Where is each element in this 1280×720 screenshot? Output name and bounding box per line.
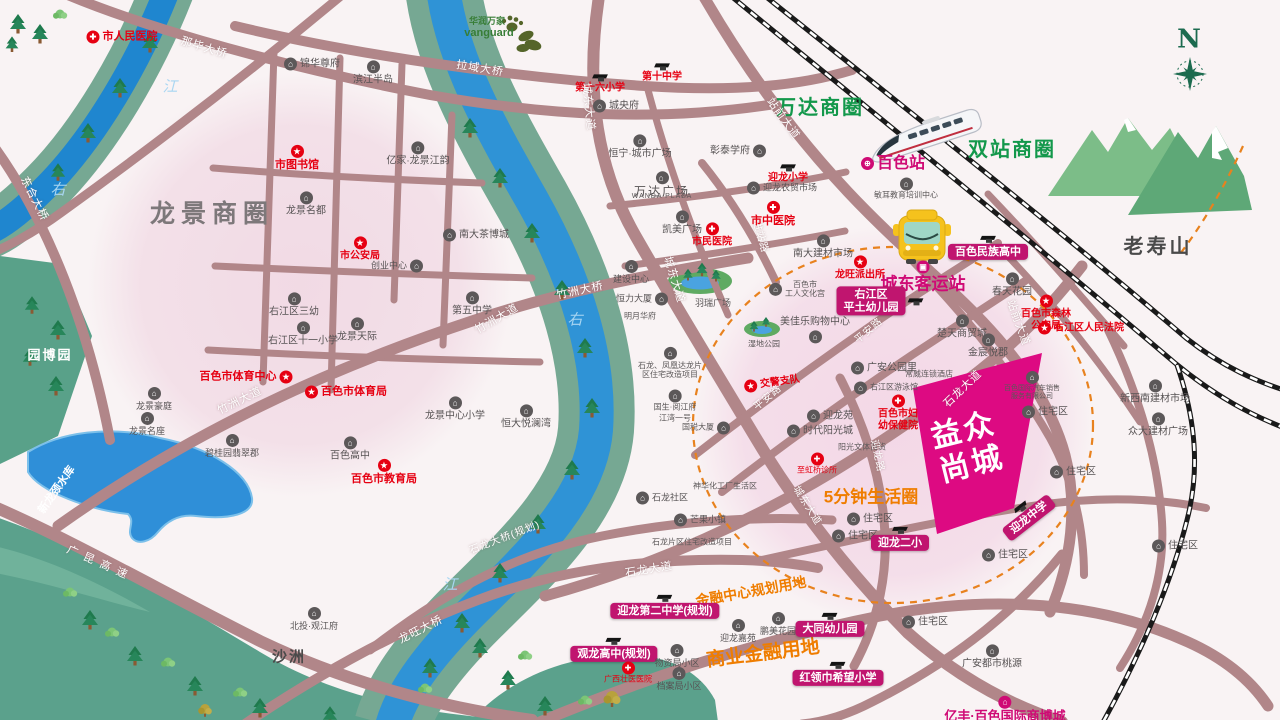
jianshe-center: ⌂建设中心 — [613, 260, 649, 284]
house-icon: ⌂ — [655, 171, 668, 184]
longjing-mingdu-text: 龙景名都 — [286, 205, 326, 216]
longjing-haoting: ⌂龙景豪庭 — [136, 387, 172, 411]
zhuzhou-avenue-label-1: 竹洲大道 — [216, 385, 265, 417]
house-icon: ⌂ — [412, 141, 425, 154]
yinglong-jiayuan-text: 迎龙嘉苑 — [720, 633, 756, 643]
hengda-yuelanwan: ⌂恒大悦澜湾 — [501, 404, 551, 429]
binjiang-peninsula-text: 滨江半岛 — [353, 74, 393, 85]
guosheng-yuejiangfu-text: 国生·阅江府 — [654, 404, 697, 413]
layu-bridge-road-label: 拉域大桥 — [455, 59, 504, 79]
yinglong-2nd-primary: 迎龙二小 — [871, 525, 929, 551]
pingan-road-label-2: 平安路 — [853, 316, 885, 346]
guangxi-zhuang-hospital: ✚广西壮医医院 — [604, 662, 652, 685]
wetland-park: 湿地公园 — [748, 341, 780, 350]
longjing-center-primary: ⌂龙景中心小学 — [425, 396, 485, 421]
house-icon: ⌂ — [300, 191, 313, 204]
house-icon: ⌂ — [624, 260, 637, 273]
station-icon: ⊕ — [861, 158, 874, 171]
hengli-tower-text: 恒力大厦 — [616, 294, 652, 304]
zhongda-building-plaza-text: 众大建材广场 — [1128, 426, 1188, 437]
house-icon: ⌂ — [410, 260, 423, 273]
star-icon: ★ — [291, 145, 304, 158]
vanguard-logo-en-text: vanguard — [464, 27, 514, 39]
wuziju-block: ⌂物资局小区 — [654, 644, 699, 668]
youjiang-3rd-kindergarten-text: 右江区三幼 — [269, 306, 319, 317]
no10-middle-school-text: 第十中学 — [642, 71, 682, 82]
chengdong-avenue-label-3-text: 城东大道 — [791, 484, 824, 527]
five-minute-life-circle: 5分钟生活圈 — [824, 487, 918, 506]
house-icon: ⌂ — [769, 283, 782, 296]
house-icon: ⌂ — [982, 333, 995, 346]
chengyangfu-text: 城央府 — [609, 100, 639, 111]
sports-bureau: ★百色市体育局 — [305, 386, 387, 399]
no5-middle-school: ⌂第五中学 — [452, 291, 492, 316]
yuanbo-park-label: 园博园 — [27, 349, 72, 364]
guangkun-expressway-label: 广昆高速 — [65, 544, 136, 585]
project-name-text: 益众尚城 — [928, 407, 1009, 490]
danganju-block: ⌂档案局小区 — [656, 667, 701, 691]
yinglong-farmers-market-text: 迎龙农贸市场 — [763, 183, 817, 193]
hengning-city-plaza: ⌂恒宁·城市广场 — [608, 134, 671, 159]
river1-char-you-text: 右 — [50, 182, 65, 199]
yinglong-farmers-market: ⌂迎龙农贸市场 — [747, 182, 817, 195]
house-icon: ⌂ — [284, 58, 297, 71]
hengning-city-plaza-text: 恒宁·城市广场 — [608, 148, 671, 159]
house-icon: ⌂ — [809, 331, 822, 344]
city-library: ★市图书馆 — [275, 145, 319, 171]
graduation-cap-icon — [593, 72, 608, 81]
house-icon: ⌂ — [1149, 379, 1162, 392]
guanlong-high-planned-text: 观龙高中(规划) — [570, 646, 657, 662]
estate-location-map: ✚市人民医院那毕大桥⌂锦华尊府⌂滨江半岛拉域大桥华润万家vanguard第十六小… — [0, 0, 1280, 720]
city-peoples-hospital: ✚市人民医院 — [87, 31, 158, 44]
city-tcm-hospital-text: 市中医院 — [751, 215, 795, 227]
house-icon: ⌂ — [593, 100, 606, 113]
longjing-mingzuo-text: 龙景名座 — [129, 426, 165, 436]
cross-icon: ✚ — [892, 395, 905, 408]
nabi-bridge-road-label-text: 那毕大桥 — [179, 35, 229, 61]
house-icon: ⌂ — [1006, 272, 1019, 285]
yinglong-middle-school-text: 迎龙中学 — [1001, 494, 1057, 543]
city-library-text: 市图书馆 — [275, 159, 319, 171]
pingtu-kindergarten: 右江区平土幼儿园 — [837, 286, 924, 315]
star-icon: ★ — [1038, 322, 1051, 335]
xinxinan-building-market: ⌂新西南建材市场 — [1120, 379, 1190, 404]
star-icon: ★ — [280, 371, 293, 384]
house-icon: ⌂ — [817, 234, 830, 247]
house-icon: ⌂ — [854, 382, 867, 395]
house-icon: ⌂ — [847, 513, 860, 526]
binjiang-peninsula: ⌂滨江半岛 — [353, 60, 393, 85]
auto-sales-company: ⌂百色国际汽车销售服务有限公司 — [1004, 371, 1060, 401]
youjiang-swimming-pool-text: 右江区游泳馆 — [870, 384, 918, 393]
longjing-haoting-text: 龙景豪庭 — [136, 401, 172, 411]
yinglong-2nd-primary-text: 迎龙二小 — [871, 535, 929, 551]
river1-char-you: 右 — [50, 182, 65, 199]
river1-char-jiang: 江 — [162, 79, 177, 96]
shenhua-plant-living-area-text: 神华化工厂生活区 — [693, 483, 757, 492]
biguiyuan-feicuijun: ⌂碧桂园翡翠郡 — [205, 434, 259, 458]
yifeng-expo-city-text: 亿丰·百色国际商博城 — [944, 710, 1065, 720]
house-icon: ⌂ — [297, 321, 310, 334]
guangan-metro-taoyuan-text: 广安都市桃源 — [962, 658, 1022, 669]
yijia-longjiang: ⌂亿家·龙景江韵 — [386, 141, 449, 166]
city-tcm-hospital: ✚市中医院 — [751, 201, 795, 227]
yijia-longjiang-text: 亿家·龙景江韵 — [386, 155, 449, 166]
baise-high-school: ⌂百色高中 — [330, 436, 370, 461]
yurui-plaza: 羽瑞广场 — [695, 298, 731, 308]
graduation-cap-icon — [831, 660, 846, 669]
compass-n-label-text: N — [1177, 25, 1201, 54]
youjiang-swimming-pool: ⌂右江区游泳馆 — [854, 382, 918, 395]
house-icon: ⌂ — [668, 390, 681, 403]
cross-icon: ✚ — [87, 31, 100, 44]
busstop-icon: ▣ — [917, 260, 930, 273]
xinlongjing-reservoir-label: 新龙颈水库 — [36, 464, 78, 516]
auto-sales-company-text: 百色国际汽车销售服务有限公司 — [1004, 385, 1060, 401]
yifeng-expo-city: ⌂亿丰·百色国际商博城 — [944, 696, 1065, 720]
graduation-cap-icon — [909, 297, 924, 306]
residential-area-2-text: 住宅区 — [1066, 466, 1096, 477]
mall-icon: ⌂ — [999, 696, 1012, 709]
no5-middle-school-text: 第五中学 — [452, 305, 492, 316]
jinhua-mansion-text: 锦华尊府 — [300, 58, 340, 69]
wanda-business-circle-text: 万达商圈 — [776, 97, 864, 119]
times-sunshine-city-text: 时代阳光城 — [803, 425, 853, 436]
yinglong-middle-school: 迎龙中学 — [995, 486, 1057, 542]
house-icon: ⌂ — [832, 530, 845, 543]
shilong-housing-project-text: 石龙片区住宅改造项目 — [652, 539, 732, 548]
longwang-bridge-label-text: 龙旺大桥 — [397, 614, 445, 647]
star-icon: ★ — [378, 459, 391, 472]
pengmei-garden: ⌂鹏美花园 — [760, 612, 796, 636]
residential-area-7: ⌂住宅区 — [902, 616, 948, 629]
house-icon: ⌂ — [225, 434, 238, 447]
guangkun-expressway-label-text: 广昆高速 — [65, 544, 136, 585]
beitou-guanjiangfu-text: 北投·观江府 — [290, 621, 338, 631]
yuanbo-park-label-text: 园博园 — [27, 349, 72, 364]
zhuzhou-bridge-label: 竹洲大桥 — [555, 280, 605, 302]
graduation-cap-icon — [893, 525, 908, 534]
wanda-plaza-en-text: WANDA PLAZA — [632, 193, 693, 201]
graduation-cap-icon — [823, 611, 838, 620]
guangxi-zhuang-hospital-text: 广西壮医医院 — [604, 676, 652, 685]
chuangye-center-text: 创业中心 — [371, 261, 407, 271]
house-icon: ⌂ — [747, 182, 760, 195]
donghe-bridge-road-label: 东合大桥 — [18, 175, 51, 223]
house-icon: ⌂ — [351, 317, 364, 330]
house-icon: ⌂ — [672, 667, 685, 680]
biguiyuan-feicuijun-text: 碧桂园翡翠郡 — [205, 448, 259, 458]
xinxinan-building-market-text: 新西南建材市场 — [1120, 393, 1190, 404]
house-icon: ⌂ — [717, 422, 730, 435]
cross-icon: ✚ — [767, 201, 780, 214]
house-icon: ⌂ — [956, 314, 969, 327]
house-icon: ⌂ — [986, 644, 999, 657]
longjing-business-circle-text: 龙景商圈 — [150, 200, 274, 228]
miner-education-center: ⌂敏耳教育培训中心 — [874, 178, 938, 201]
house-icon: ⌂ — [670, 644, 683, 657]
baise-minzu-high-school-text: 百色民族高中 — [948, 244, 1028, 260]
star-icon: ★ — [743, 379, 758, 394]
mch-hospital-text: 百色市妇幼保健院 — [878, 409, 918, 432]
baise-railway-station-text: 百色站 — [877, 155, 925, 173]
xinlongjing-reservoir-label-text: 新龙颈水库 — [36, 464, 78, 516]
house-icon: ⌂ — [147, 387, 160, 400]
sports-center: ★百色市体育中心 — [200, 371, 293, 384]
shilong-avenue-label-1: 石龙大道 — [624, 560, 673, 580]
mango-town: ⌂芒果小镇 — [674, 514, 726, 527]
house-icon: ⌂ — [1152, 540, 1165, 553]
laoshou-mountain-text: 老寿山 — [1124, 236, 1193, 258]
longjing-mingzuo: ⌂龙景名座 — [129, 412, 165, 436]
hengda-yuelanwan-text: 恒大悦澜湾 — [501, 418, 551, 429]
workers-culture-palace: ⌂百色市工人文化宫 — [769, 280, 825, 298]
guosheng-yuejiangfu: ⌂国生·阅江府 — [654, 390, 697, 413]
times-sunshine-city: ⌂时代阳光城 — [787, 425, 853, 438]
residential-area-3-text: 住宅区 — [863, 513, 893, 524]
star-icon: ★ — [305, 386, 318, 399]
five-minute-life-circle-text: 5分钟生活圈 — [824, 487, 918, 506]
house-icon: ⌂ — [676, 210, 689, 223]
zhangtai-xuefu: ⌂彰泰学府 — [710, 145, 766, 158]
miner-education-center-text: 敏耳教育培训中心 — [874, 192, 938, 201]
city-psb-text: 市公安局 — [340, 250, 380, 261]
donghe-bridge-road-label-text: 东合大桥 — [18, 175, 51, 223]
shilong-community-text: 石龙社区 — [652, 493, 688, 503]
shazhou-label: 沙洲 — [272, 650, 306, 667]
yinglong-2nd-middle-planned: 迎龙第二中学(规划) — [610, 593, 719, 619]
jinchen-yuejun-text: 金宸悦郡 — [968, 347, 1008, 358]
shilong-bridge-planned-label: 石龙大桥(规划) — [468, 519, 542, 556]
mingyue-mansion-text: 明月华府 — [624, 313, 656, 322]
star-icon: ★ — [854, 255, 867, 268]
city-psb: ★市公安局 — [340, 236, 380, 261]
house-icon: ⌂ — [851, 362, 864, 375]
residential-area-5-text: 住宅区 — [998, 549, 1028, 560]
chengyangfu: ⌂城央府 — [593, 100, 639, 113]
residential-area-1: ⌂住宅区 — [1022, 406, 1068, 419]
guangan-metro-taoyuan: ⌂广安都市桃源 — [962, 644, 1022, 669]
house-icon: ⌂ — [771, 612, 784, 625]
house-icon: ⌂ — [753, 145, 766, 158]
mingyue-mansion: 明月华府 — [624, 313, 656, 322]
yinglong-yuan: ⌂迎龙苑 — [807, 410, 853, 423]
baise-railway-station: ⊕百色站 — [861, 155, 925, 173]
vanguard-logo-cn: 华润万家 — [469, 16, 505, 26]
red-scarf-hope-primary-text: 红领巾希望小学 — [793, 670, 884, 686]
education-bureau-text: 百色市教育局 — [351, 473, 417, 485]
changwei-hotel-text: 常威连锁酒店 — [905, 371, 953, 380]
star-icon: ★ — [354, 236, 367, 249]
house-icon: ⌂ — [1050, 466, 1063, 479]
river1-char-jiang-text: 江 — [162, 79, 177, 96]
house-icon: ⌂ — [520, 404, 533, 417]
hengli-tower: ⌂恒力大厦 — [616, 293, 668, 306]
house-icon: ⌂ — [664, 347, 677, 360]
house-icon: ⌂ — [140, 412, 153, 425]
yinglong-jiayuan: ⌂迎龙嘉苑 — [720, 619, 756, 643]
house-icon: ⌂ — [1026, 371, 1039, 384]
house-icon: ⌂ — [902, 616, 915, 629]
guanlong-high-planned: 观龙高中(规划) — [570, 636, 657, 662]
jianshe-center-text: 建设中心 — [613, 274, 649, 284]
graduation-cap-icon — [981, 234, 996, 243]
youjiang-11th-primary-text: 右江区十一小学 — [268, 335, 338, 346]
cross-icon: ✚ — [811, 453, 824, 466]
chengdong-avenue-label-3: 城东大道 — [791, 484, 824, 527]
youjiang-3rd-kindergarten: ⌂右江区三幼 — [269, 292, 319, 317]
sports-bureau-text: 百色市体育局 — [321, 386, 387, 398]
river2-char-jiang: 江 — [442, 577, 457, 594]
house-icon: ⌂ — [900, 178, 913, 191]
kaimei-plaza-text: 凯美广场 — [662, 224, 702, 235]
river2-char-you-text: 右 — [567, 312, 582, 329]
house-icon: ⌂ — [787, 425, 800, 438]
meijiale-shopping-center: ⌂美佳乐购物中心 — [780, 316, 850, 343]
graduation-cap-icon — [655, 61, 670, 70]
longjing-tianji-text: 龙景天际 — [337, 331, 377, 342]
house-icon: ⌂ — [655, 293, 668, 306]
jinchen-yuejun: ⌂金宸悦郡 — [968, 333, 1008, 358]
workers-culture-palace-text: 百色市工人文化宫 — [785, 280, 825, 298]
shazhou-label-text: 沙洲 — [272, 650, 306, 667]
zhongda-building-plaza: ⌂众大建材广场 — [1128, 412, 1188, 437]
star-icon: ★ — [1040, 295, 1053, 308]
shuangzhan-business-circle: 双站商圈 — [968, 139, 1056, 161]
pingan-road-label-2-text: 平安路 — [853, 316, 885, 346]
shilong-avenue-label-1-text: 石龙大道 — [624, 560, 673, 580]
datong-kindergarten-text: 大同幼儿园 — [796, 621, 865, 637]
longjing-mingdu: ⌂龙景名都 — [286, 191, 326, 216]
wanda-business-circle: 万达商圈 — [776, 97, 864, 119]
rainbow-bridge-clinic-text: 至虹桥诊所 — [797, 467, 837, 476]
zhuzhou-avenue-label-1-text: 竹洲大道 — [216, 385, 265, 417]
zhangtai-xuefu-text: 彰泰学府 — [710, 145, 750, 156]
shilong-community: ⌂石龙社区 — [636, 492, 688, 505]
district-court-text: 右江区人民法院 — [1054, 322, 1124, 333]
graduation-cap-icon — [781, 162, 796, 171]
house-icon: ⌂ — [466, 291, 479, 304]
wetland-park-text: 湿地公园 — [748, 341, 780, 350]
house-icon: ⌂ — [308, 607, 321, 620]
house-icon: ⌂ — [731, 619, 744, 632]
house-icon: ⌂ — [344, 436, 357, 449]
nanda-tea-expo-city-text: 南大茶博城 — [459, 229, 509, 240]
residential-area-1-text: 住宅区 — [1038, 406, 1068, 417]
shuangzhan-business-circle-text: 双站商圈 — [968, 139, 1056, 161]
nabi-bridge-road-label: 那毕大桥 — [179, 35, 229, 61]
layu-bridge-road-label-text: 拉域大桥 — [455, 59, 504, 79]
river2-char-jiang-text: 江 — [442, 577, 457, 594]
no10-middle-school: 第十中学 — [642, 61, 682, 82]
shenhua-plant-living-area: 神华化工厂生活区 — [693, 483, 757, 492]
graduation-cap-icon — [657, 593, 672, 602]
meijiale-shopping-center-text: 美佳乐购物中心 — [780, 316, 850, 327]
house-icon: ⌂ — [1152, 412, 1165, 425]
kaimei-plaza: ⌂凯美广场 — [662, 210, 702, 235]
residential-area-7-text: 住宅区 — [918, 616, 948, 627]
house-icon: ⌂ — [1022, 406, 1035, 419]
longjing-tianji: ⌂龙景天际 — [337, 317, 377, 342]
residential-area-2: ⌂住宅区 — [1050, 466, 1096, 479]
rainbow-bridge-clinic: ✚至虹桥诊所 — [797, 453, 837, 476]
residential-area-3: ⌂住宅区 — [847, 513, 893, 526]
danganju-block-text: 档案局小区 — [656, 681, 701, 691]
longwang-police-station: ★龙旺派出所 — [835, 255, 885, 280]
shilong-bridge-planned-label-text: 石龙大桥(规划) — [468, 519, 542, 556]
river2-char-you: 右 — [567, 312, 582, 329]
longwang-bridge-label: 龙旺大桥 — [397, 614, 445, 647]
wanda-plaza-en: WANDA PLAZA — [632, 193, 693, 201]
datong-kindergarten: 大同幼儿园 — [796, 611, 865, 637]
house-icon: ⌂ — [674, 514, 687, 527]
yurui-plaza-text: 羽瑞广场 — [695, 298, 731, 308]
house-icon: ⌂ — [636, 492, 649, 505]
residential-area-6-text: 住宅区 — [1168, 540, 1198, 551]
house-icon: ⌂ — [367, 60, 380, 73]
longjing-center-primary-text: 龙景中心小学 — [425, 410, 485, 421]
house-icon: ⌂ — [449, 396, 462, 409]
sports-center-text: 百色市体育中心 — [200, 371, 277, 383]
yinglong-primary: 迎龙小学 — [768, 162, 808, 183]
baise-minzu-high-school: 百色民族高中 — [948, 234, 1028, 260]
shilong-housing-project: 石龙片区住宅改造项目 — [652, 539, 732, 548]
vanguard-logo-cn-text: 华润万家 — [469, 16, 505, 26]
residential-area-6: ⌂住宅区 — [1152, 540, 1198, 553]
shilong-redevelopment: ⌂石龙、凤凰达龙片区住宅改造项目 — [638, 347, 702, 379]
laoshou-mountain: 老寿山 — [1124, 236, 1193, 258]
guoshui-tower-text: 国税大厦 — [682, 424, 714, 433]
house-icon: ⌂ — [634, 134, 647, 147]
cross-icon: ✚ — [706, 222, 719, 235]
shilong-redevelopment-text: 石龙、凤凰达龙片区住宅改造项目 — [638, 361, 702, 379]
education-bureau: ★百色市教育局 — [351, 459, 417, 485]
city-peoples-hospital-text: 市人民医院 — [103, 31, 158, 43]
civic-hospital-text: 市民医院 — [692, 236, 732, 247]
yinglong-2nd-middle-planned-text: 迎龙第二中学(规划) — [610, 603, 719, 619]
red-scarf-hope-primary: 红领巾希望小学 — [793, 660, 884, 686]
changwei-hotel: 常威连锁酒店 — [905, 371, 953, 380]
pingtu-kindergarten-text: 右江区平土幼儿园 — [837, 286, 906, 315]
nanda-tea-expo-city: ⌂南大茶博城 — [443, 229, 509, 242]
vanguard-logo-en: vanguard — [464, 27, 514, 39]
mango-town-text: 芒果小镇 — [690, 515, 726, 525]
pengmei-garden-text: 鹏美花园 — [760, 626, 796, 636]
project-name: 益众尚城 — [928, 407, 1009, 490]
house-icon: ⌂ — [807, 410, 820, 423]
zhuzhou-bridge-label-text: 竹洲大桥 — [555, 280, 605, 302]
residential-area-5: ⌂住宅区 — [982, 549, 1028, 562]
house-icon: ⌂ — [982, 549, 995, 562]
yinglong-yuan-text: 迎龙苑 — [823, 410, 853, 421]
graduation-cap-icon — [606, 636, 621, 645]
district-court: ★右江区人民法院 — [1038, 322, 1124, 335]
beitou-guanjiangfu: ⌂北投·观江府 — [290, 607, 338, 631]
guoshui-tower: ⌂国税大厦 — [682, 422, 730, 435]
house-icon: ⌂ — [443, 229, 456, 242]
compass-n-label: N — [1177, 25, 1201, 54]
longwang-police-station-text: 龙旺派出所 — [835, 269, 885, 280]
youjiang-11th-primary: ⌂右江区十一小学 — [268, 321, 338, 346]
mch-hospital: ✚百色市妇幼保健院 — [878, 395, 918, 432]
longjing-business-circle: 龙景商圈 — [150, 200, 274, 228]
house-icon: ⌂ — [288, 292, 301, 305]
jinhua-mansion: ⌂锦华尊府 — [284, 58, 340, 71]
cross-icon: ✚ — [622, 662, 635, 675]
map-labels-layer: ✚市人民医院那毕大桥⌂锦华尊府⌂滨江半岛拉域大桥华润万家vanguard第十六小… — [0, 0, 1280, 720]
